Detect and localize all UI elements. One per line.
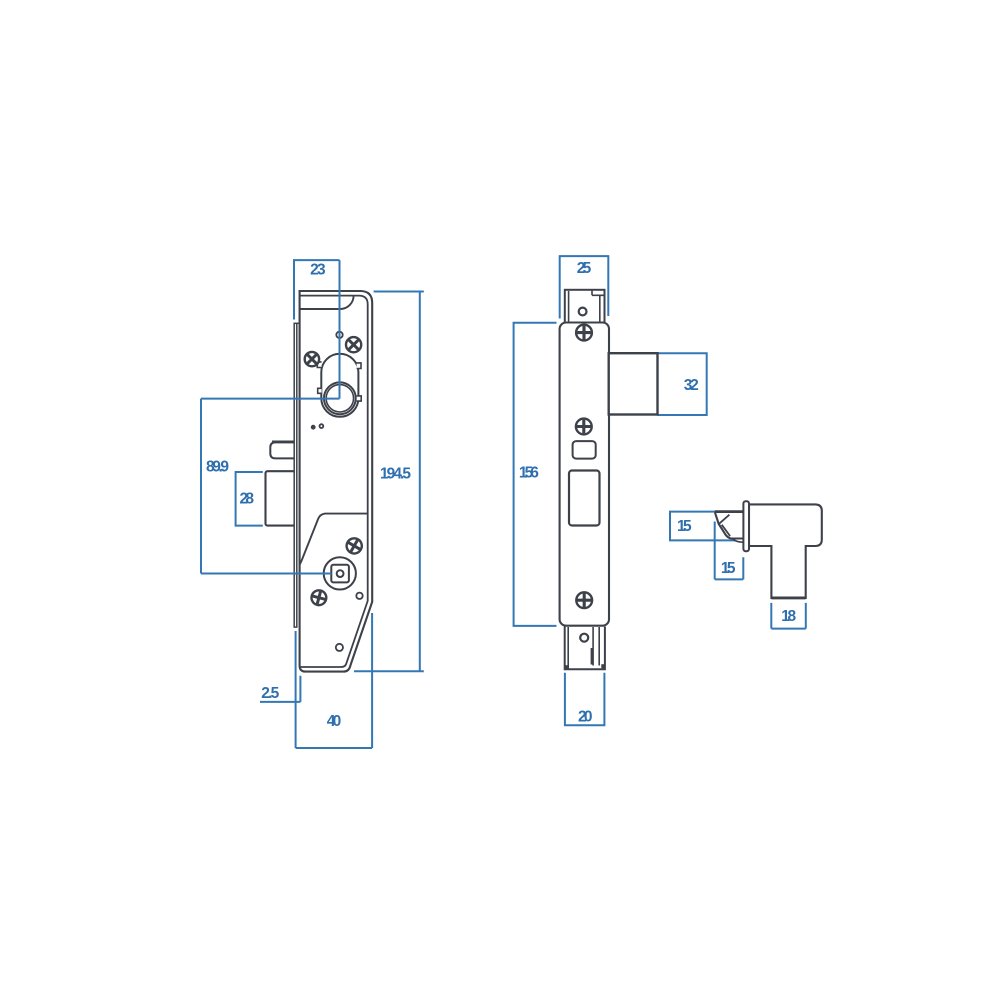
svg-text:23: 23 [310,262,326,279]
svg-text:25: 25 [577,260,592,277]
svg-text:32: 32 [684,377,699,394]
svg-text:156: 156 [519,465,539,482]
svg-text:15: 15 [721,560,736,577]
svg-text:20: 20 [578,709,593,726]
svg-text:40: 40 [327,713,342,730]
svg-text:194.5: 194.5 [380,466,411,483]
svg-text:18: 18 [781,608,796,625]
svg-text:15: 15 [677,518,692,535]
svg-text:2.5: 2.5 [261,685,279,702]
svg-text:28: 28 [240,490,255,507]
svg-text:89.9: 89.9 [206,458,229,475]
